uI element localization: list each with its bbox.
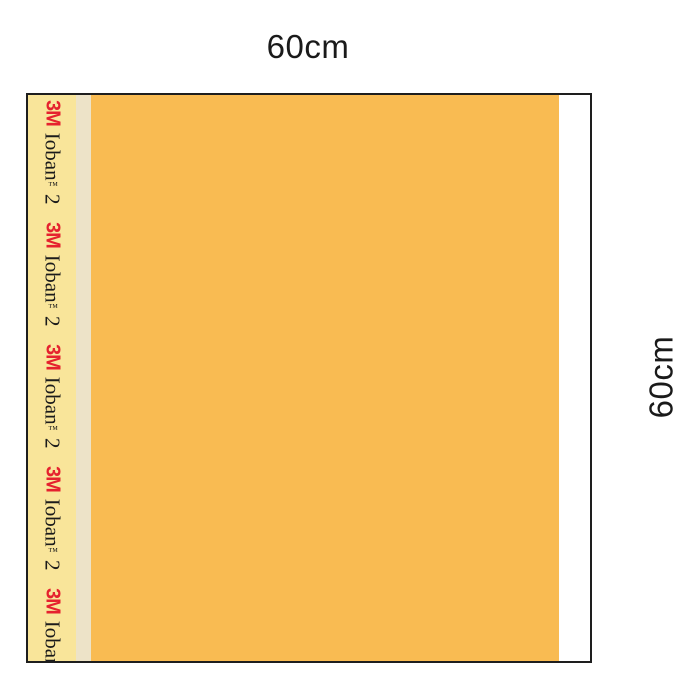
product-version-text: 2 [41,194,65,205]
product-name-text: Ioban [41,133,65,181]
brand-logo-text: 3M [42,222,64,248]
tape-print-unit: 3MIoban™2 [28,466,76,588]
liner-divider-strip [76,95,91,661]
brand-logo-text: 3M [42,344,64,370]
tape-print-unit: 3MIoban™2 [28,100,76,222]
height-dimension-label: 60cm [645,336,678,419]
brand-logo-text: 3M [42,100,64,126]
trademark-symbol: ™ [48,181,59,192]
product-version-text: 2 [41,438,65,449]
trademark-symbol: ™ [48,425,59,436]
brand-logo-text: 3M [42,588,64,614]
product-name-text: Ioban [41,499,65,547]
tape-print-unit: 3MIoban™2 [28,588,76,661]
adhesive-border-tape: 3MIoban™2 3MIoban™2 3MIoban™2 3MIoban™2 … [28,95,76,661]
product-name-text: Ioban [41,621,65,661]
product-version-text: 2 [41,316,65,327]
brand-logo-text: 3M [42,466,64,492]
product-name-text: Ioban [41,255,65,303]
tape-print-unit: 3MIoban™2 [28,344,76,466]
tape-print-unit: 3MIoban™2 [28,222,76,344]
width-dimension-label: 60cm [267,30,350,63]
product-dimension-diagram: 60cm 60cm 3MIoban™2 3MIoban™2 3MIoban™2 … [0,0,700,700]
product-version-text: 2 [41,560,65,571]
product-name-text: Ioban [41,377,65,425]
trademark-symbol: ™ [48,303,59,314]
incise-drape-illustration: 3MIoban™2 3MIoban™2 3MIoban™2 3MIoban™2 … [26,93,592,663]
white-edge-strip [559,95,590,661]
iodophor-incise-film [91,95,559,661]
trademark-symbol: ™ [48,547,59,558]
